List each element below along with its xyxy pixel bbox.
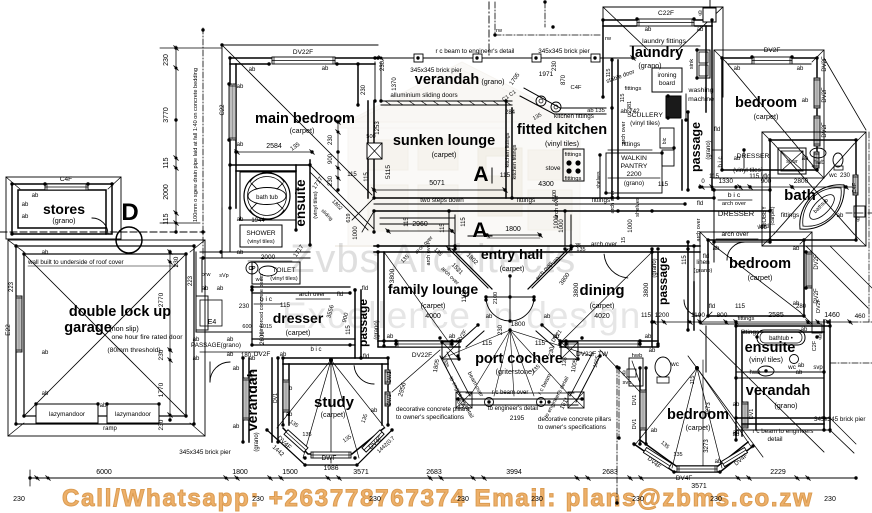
svg-text:4000: 4000 [425, 313, 441, 320]
svg-text:arch over: arch over [591, 241, 617, 248]
svg-text:2956: 2956 [397, 381, 408, 397]
svg-text:ab: ab [544, 314, 551, 320]
svg-text:fld: fld [709, 304, 715, 310]
svg-text:decorative concrete pillars: decorative concrete pillars [396, 406, 469, 413]
svg-text:wc: wc [828, 172, 837, 179]
svg-text:ab: ab [22, 214, 29, 220]
svg-text:(non slip): (non slip) [109, 324, 139, 333]
svg-text:lazymandoor: lazymandoor [115, 411, 151, 418]
svg-text:passage: passage [656, 257, 670, 305]
svg-text:(grano): (grano) [52, 216, 75, 225]
svg-text:1100: 1100 [462, 289, 468, 303]
svg-text:2100: 2100 [493, 292, 499, 304]
svg-text:entry hall: entry hall [481, 246, 543, 262]
svg-text:3800: 3800 [573, 282, 580, 297]
svg-text:wc: wc [670, 361, 679, 368]
svg-text:(carpet): (carpet) [770, 206, 776, 225]
svg-text:1800: 1800 [505, 226, 521, 233]
svg-text:1971: 1971 [539, 71, 554, 78]
svg-text:svp: svp [622, 380, 631, 386]
svg-text:(grano): (grano) [706, 140, 712, 159]
svg-text:1005: 1005 [440, 355, 449, 368]
svg-text:reinforced concrete beam: reinforced concrete beam [259, 273, 265, 336]
svg-text:study: study [314, 394, 355, 411]
svg-text:230: 230 [13, 496, 25, 503]
svg-text:SHOWER: SHOWER [246, 230, 276, 237]
svg-text:r c beam: r c beam [537, 373, 553, 396]
svg-text:b i c: b i c [310, 347, 321, 353]
svg-text:2770: 2770 [158, 292, 165, 307]
svg-text:arch over: arch over [299, 291, 325, 298]
svg-text:(grano): (grano) [774, 401, 797, 410]
svg-text:115: 115 [346, 325, 352, 335]
svg-text:C22F: C22F [658, 10, 674, 17]
svg-text:2585: 2585 [768, 312, 784, 319]
svg-text:135: 135 [290, 141, 302, 152]
svg-text:(griterstone): (griterstone) [496, 367, 535, 376]
svg-text:ab: ab [32, 193, 39, 199]
svg-text:wall built to underside of roo: wall built to underside of roof cover [27, 259, 124, 266]
svg-text:230: 230 [158, 349, 165, 360]
svg-text:(80mm threshold): (80mm threshold) [107, 347, 160, 354]
svg-text:fittings: fittings [592, 197, 610, 204]
svg-text:machine: machine [688, 96, 714, 103]
svg-text:kitchen fittings: kitchen fittings [554, 113, 594, 120]
svg-text:ab: ab [651, 428, 658, 434]
svg-text:g: g [698, 9, 702, 16]
svg-text:1500: 1500 [282, 469, 298, 476]
svg-text:ab: ab [798, 363, 805, 369]
svg-text:115: 115 [163, 157, 170, 168]
svg-text:115: 115 [682, 255, 688, 265]
svg-text:ab: ab [42, 350, 49, 356]
svg-text:900: 900 [761, 178, 772, 185]
svg-text:TOILET: TOILET [273, 267, 296, 274]
svg-text:1802: 1802 [330, 199, 343, 212]
svg-text:223: 223 [9, 281, 15, 292]
svg-text:2584: 2584 [266, 143, 282, 150]
svg-text:100mm o sgew drain pipe laid a: 100mm o sgew drain pipe laid at fall 1:4… [193, 68, 199, 222]
svg-text:vfld: vfld [759, 223, 769, 230]
svg-text:fittings: fittings [565, 176, 582, 182]
svg-text:hwb: hwb [749, 370, 761, 376]
svg-text:DV1: DV1 [632, 419, 638, 430]
svg-text:decorative concrete pillars: decorative concrete pillars [538, 416, 611, 423]
svg-text:(grano): (grano) [652, 258, 658, 277]
svg-text:ab: ab [371, 408, 378, 414]
svg-text:870: 870 [561, 74, 567, 85]
svg-text:1330: 1330 [719, 178, 734, 185]
svg-text:Call/Whatsapp: +263778767374: Call/Whatsapp: +263778767374 Email: plan… [62, 485, 814, 512]
svg-text:bic: bic [662, 137, 668, 144]
svg-text:230: 230 [163, 54, 170, 66]
svg-text:(carpet): (carpet) [686, 423, 711, 432]
svg-text:345x345 brick pier: 345x345 brick pier [179, 449, 230, 456]
svg-text:5071: 5071 [429, 180, 445, 187]
svg-text:E4: E4 [208, 319, 217, 326]
svg-text:r c beam to engineer's detail: r c beam to engineer's detail [436, 48, 515, 55]
svg-text:115: 115 [461, 217, 467, 227]
svg-text:dining: dining [580, 282, 625, 299]
svg-text:DV2F: DV2F [816, 298, 822, 313]
svg-text:fitted kitchen: fitted kitchen [517, 122, 607, 138]
svg-text:ab: ab [649, 348, 656, 354]
svg-text:ab: ab [233, 366, 240, 372]
svg-text:115: 115 [280, 302, 291, 309]
svg-text:PANTRY: PANTRY [621, 163, 648, 170]
svg-text:(grano): (grano) [374, 320, 380, 339]
svg-text:DV2F: DV2F [822, 122, 828, 138]
svg-text:bath: bath [784, 187, 816, 204]
svg-text:1800: 1800 [232, 469, 248, 476]
svg-text:E22: E22 [5, 324, 12, 336]
svg-text:ab: ab [202, 286, 209, 292]
svg-text:C4F: C4F [60, 176, 72, 183]
svg-text:DW1: DW1 [387, 394, 393, 405]
svg-text:arch over: arch over [426, 242, 432, 265]
svg-text:ab: ab [286, 412, 293, 418]
svg-text:stove: stove [545, 165, 561, 172]
svg-text:b i c: b i c [718, 156, 724, 167]
svg-text:ab: ab [22, 202, 29, 208]
svg-text:ab: ab [193, 337, 200, 343]
svg-text:115: 115 [620, 94, 626, 103]
svg-text:ab: ab [322, 66, 329, 72]
svg-text:(carpet): (carpet) [290, 126, 315, 135]
svg-text:284: 284 [505, 110, 516, 116]
svg-text:fittings: fittings [625, 86, 642, 92]
svg-text:r c beam to engineers: r c beam to engineers [753, 428, 814, 435]
svg-text:ab: ab [237, 142, 244, 148]
svg-text:1000: 1000 [559, 219, 565, 233]
svg-text:135: 135 [673, 452, 682, 458]
svg-text:1460: 1460 [824, 312, 840, 319]
svg-text:DW1: DW1 [387, 371, 393, 382]
svg-text:bath tub: bath tub [256, 195, 278, 201]
svg-text:115: 115 [658, 181, 669, 188]
svg-text:board: board [659, 80, 676, 87]
svg-text:135: 135 [361, 413, 370, 424]
svg-text:ensuite: ensuite [745, 340, 796, 356]
svg-text:bedroom: bedroom [735, 95, 797, 111]
svg-text:(carpet): (carpet) [754, 112, 779, 121]
svg-text:svp: svp [813, 365, 823, 371]
svg-text:3273: 3273 [704, 439, 710, 453]
svg-text:(carpet): (carpet) [500, 264, 525, 273]
svg-text:ab: ab [645, 334, 652, 340]
svg-text:arch over: arch over [610, 190, 616, 213]
svg-text:ab: ab [715, 459, 722, 465]
svg-text:1986: 1986 [323, 465, 338, 472]
svg-text:laundry: laundry [631, 45, 683, 61]
svg-text:ensuite: ensuite [293, 179, 308, 227]
svg-text:DV22F: DV22F [412, 352, 432, 359]
svg-text:3800: 3800 [389, 268, 396, 283]
svg-text:3994: 3994 [506, 469, 522, 476]
svg-text:sink: sink [689, 59, 695, 69]
svg-text:ab: ab [713, 246, 720, 252]
svg-text:D: D [121, 199, 138, 226]
svg-text:hwb: hwb [632, 353, 643, 359]
svg-text:stores: stores [43, 201, 85, 217]
svg-text:3800: 3800 [643, 282, 650, 297]
svg-text:lazymandoor: lazymandoor [49, 411, 85, 418]
svg-text:1800: 1800 [511, 321, 526, 328]
svg-text:ab: ab [733, 432, 740, 438]
svg-text:DV1: DV1 [632, 395, 638, 406]
svg-text:DRESSER: DRESSER [737, 153, 770, 160]
svg-text:ab: ab [249, 67, 256, 73]
svg-text:(vinyl tiles): (vinyl tiles) [749, 355, 783, 364]
svg-text:fld: fld [337, 292, 343, 298]
svg-text:345x345 brick pier: 345x345 brick pier [538, 48, 589, 55]
svg-text:arch over: arch over [696, 218, 702, 241]
svg-text:fld: fld [363, 354, 369, 360]
svg-text:2200: 2200 [626, 171, 641, 178]
svg-text:115: 115 [500, 172, 511, 179]
svg-text:(grano): (grano) [481, 77, 504, 86]
svg-text:rw: rw [605, 36, 612, 42]
svg-text:passage: passage [356, 299, 370, 347]
svg-text:passage: passage [689, 122, 703, 172]
svg-text:115: 115 [364, 172, 370, 182]
svg-text:double lock up: double lock up [69, 304, 171, 320]
svg-text:2000: 2000 [163, 184, 170, 200]
svg-text:3571: 3571 [353, 469, 369, 476]
svg-text:ab: ab [237, 217, 244, 223]
svg-text:ab: ab [42, 391, 49, 397]
svg-text:230: 230 [173, 256, 180, 267]
svg-text:ab: ab [802, 98, 809, 104]
svg-text:ab: ab [227, 337, 234, 343]
svg-text:to owner's specifications: to owner's specifications [538, 424, 606, 431]
svg-text:619: 619 [346, 213, 352, 222]
svg-text:115: 115 [735, 303, 746, 310]
svg-text:230: 230 [158, 419, 165, 430]
svg-text:g: g [818, 334, 821, 340]
svg-text:ab: ab [797, 66, 804, 72]
svg-text:fittings: fittings [738, 316, 755, 322]
svg-text:arch over: arch over [722, 201, 746, 207]
svg-text:1200: 1200 [655, 312, 670, 319]
svg-text:sliding: sliding [320, 208, 334, 222]
svg-text:1000: 1000 [353, 226, 359, 240]
svg-text:ab: ab [837, 213, 844, 219]
svg-text:b i c: b i c [728, 192, 741, 199]
svg-text:verandah: verandah [746, 383, 810, 399]
svg-text:ab: ab [486, 314, 493, 320]
svg-text:4020: 4020 [594, 313, 610, 320]
svg-text:135: 135 [288, 419, 299, 429]
svg-text:15: 15 [621, 237, 627, 243]
svg-text:one hour fire rated door: one hour fire rated door [111, 334, 183, 341]
svg-text:ab: ab [697, 27, 704, 33]
svg-text:3770: 3770 [163, 107, 170, 123]
svg-text:1370: 1370 [392, 77, 398, 91]
svg-text:(carpet): (carpet) [321, 410, 346, 419]
svg-text:(vinyl tiles): (vinyl tiles) [313, 191, 319, 218]
svg-text:(carpet): (carpet) [748, 273, 773, 282]
svg-text:(carpet): (carpet) [432, 150, 457, 159]
svg-text:C4F: C4F [571, 85, 582, 91]
svg-text:shelves: shelves [596, 171, 602, 188]
svg-text:g: g [622, 370, 625, 376]
svg-text:(vinyl tiles): (vinyl tiles) [545, 139, 579, 148]
svg-text:fld: fld [697, 201, 703, 207]
svg-text:(grano): (grano) [638, 61, 661, 70]
svg-text:2195: 2195 [510, 415, 525, 422]
svg-text:2683: 2683 [602, 469, 618, 476]
svg-text:fittings: fittings [622, 141, 640, 148]
svg-text:(carpet): (carpet) [590, 301, 615, 310]
svg-text:hwb: hwb [813, 159, 825, 166]
svg-text:DV4F: DV4F [676, 475, 693, 482]
svg-text:600: 600 [242, 324, 251, 330]
svg-text:C22: C22 [220, 104, 226, 116]
svg-text:230: 230 [361, 84, 367, 95]
svg-text:4500: 4500 [552, 190, 558, 202]
svg-text:fittings: fittings [781, 212, 799, 219]
svg-text:(vinyl tiles): (vinyl tiles) [630, 120, 660, 127]
svg-text:230: 230 [840, 173, 851, 179]
svg-text:two steps down: two steps down [420, 197, 464, 204]
svg-text:230: 230 [328, 134, 334, 145]
svg-text:135: 135 [342, 434, 353, 444]
svg-text:0: 0 [701, 179, 705, 185]
svg-text:PASSAGE(grano): PASSAGE(grano) [191, 342, 241, 349]
svg-text:to owner's specifications: to owner's specifications [396, 414, 464, 421]
svg-text:115: 115 [690, 376, 696, 385]
svg-text:115: 115 [606, 69, 612, 78]
svg-text:bedroom: bedroom [667, 407, 729, 423]
svg-text:2683: 2683 [426, 469, 442, 476]
svg-text:fittings: fittings [517, 197, 535, 204]
svg-text:alluminium sliding doors: alluminium sliding doors [390, 92, 457, 99]
svg-text:230: 230 [552, 60, 558, 71]
svg-text:5115: 5115 [385, 165, 392, 179]
svg-text:ab: ab [387, 334, 394, 340]
svg-text:sunken lounge: sunken lounge [393, 133, 495, 149]
svg-text:345x345 brick pier: 345x345 brick pier [814, 416, 865, 423]
svg-text:DRESSER: DRESSER [718, 209, 755, 218]
svg-text:460: 460 [855, 313, 866, 320]
svg-text:ab: ab [449, 334, 456, 340]
svg-text:1770: 1770 [158, 382, 165, 397]
svg-text:DV22F: DV22F [293, 49, 313, 56]
svg-text:shelves: shelves [635, 197, 641, 217]
svg-text:1000: 1000 [628, 219, 634, 233]
svg-text:bedroom: bedroom [729, 256, 791, 272]
svg-text:C2F: C2F [812, 340, 818, 351]
svg-text:detail: detail [767, 436, 782, 443]
svg-text:r c beam over: r c beam over [492, 390, 529, 396]
svg-text:230: 230 [824, 496, 836, 503]
svg-text:135: 135 [659, 440, 670, 451]
svg-text:1944: 1944 [251, 218, 265, 224]
svg-text:C4F: C4F [852, 182, 858, 193]
svg-text:fittings: fittings [565, 152, 582, 158]
svg-text:ab: ab [217, 286, 224, 292]
svg-text:ab: ab [796, 370, 803, 376]
svg-text:washing: washing [688, 87, 714, 94]
svg-text:1253: 1253 [375, 121, 381, 135]
svg-text:DV2F: DV2F [764, 47, 781, 54]
svg-text:kitchen fittings: kitchen fittings [512, 144, 518, 179]
svg-text:1805: 1805 [433, 358, 441, 373]
svg-text:135: 135 [302, 432, 311, 438]
svg-text:ironing: ironing [658, 72, 677, 79]
svg-text:1705: 1705 [509, 72, 522, 87]
svg-text:laundry fittings: laundry fittings [642, 38, 686, 45]
svg-text:verandah: verandah [415, 72, 479, 88]
svg-text:115: 115 [404, 217, 410, 227]
svg-text:2960: 2960 [412, 221, 428, 228]
svg-text:230: 230 [239, 303, 250, 310]
svg-text:4300: 4300 [538, 181, 554, 188]
svg-text:6000: 6000 [96, 469, 112, 476]
svg-text:DV1: DV1 [273, 393, 279, 403]
svg-text:DV2F: DV2F [254, 351, 271, 358]
svg-text:(carpet): (carpet) [286, 328, 311, 337]
svg-text:(grano): (grano) [254, 432, 260, 451]
svg-text:2800: 2800 [794, 178, 809, 185]
svg-text:2229: 2229 [770, 469, 786, 476]
svg-text:(vinyl tiles): (vinyl tiles) [247, 239, 274, 245]
svg-text:ab: ab [734, 66, 741, 72]
svg-text:DV2F: DV2F [822, 87, 828, 103]
svg-text:DV1: DV1 [250, 371, 256, 382]
svg-text:A: A [473, 163, 488, 186]
svg-text:115: 115 [347, 172, 357, 178]
svg-text:DV2F: DV2F [814, 254, 820, 270]
svg-text:ab: ab [645, 27, 652, 33]
svg-text:280: 280 [796, 304, 807, 310]
svg-text:ab: ab [42, 250, 49, 256]
svg-text:ab: ab [233, 424, 240, 430]
svg-text:1100: 1100 [691, 312, 705, 319]
svg-text:135: 135 [561, 357, 569, 367]
svg-text:135: 135 [576, 247, 585, 253]
svg-text:3273: 3273 [706, 402, 712, 416]
svg-text:223: 223 [188, 275, 194, 286]
svg-text:DWF: DWF [322, 455, 337, 462]
svg-text:ab: ab [793, 246, 800, 252]
svg-text:fld: fld [362, 286, 368, 292]
svg-text:ab: ab [237, 84, 244, 90]
svg-text:prw: prw [202, 272, 211, 278]
svg-text:wc: wc [787, 364, 796, 371]
svg-text:dresser: dresser [273, 310, 324, 326]
svg-text:fld: fld [714, 127, 720, 133]
svg-text:ab: ab [193, 356, 200, 362]
svg-text:ab: ab [237, 250, 244, 256]
svg-text:to engineer's detail: to engineer's detail [488, 406, 538, 412]
svg-text:ab: ab [227, 352, 234, 358]
svg-text:fittings: fittings [741, 329, 759, 336]
svg-text:115: 115 [440, 223, 446, 233]
svg-text:230: 230 [498, 324, 504, 335]
svg-text:garage: garage [64, 320, 112, 336]
svg-text:sVp: sVp [219, 273, 228, 279]
svg-text:(vinyl tiles): (vinyl tiles) [270, 276, 297, 282]
svg-text:SCULLERY: SCULLERY [627, 112, 663, 119]
svg-text:ab: ab [801, 327, 808, 333]
svg-text:linen: linen [696, 259, 710, 266]
svg-text:shwr: shwr [786, 159, 798, 165]
svg-text:(grano): (grano) [624, 180, 644, 187]
svg-text:A: A [472, 219, 487, 242]
svg-text:ab: ab [733, 402, 740, 408]
